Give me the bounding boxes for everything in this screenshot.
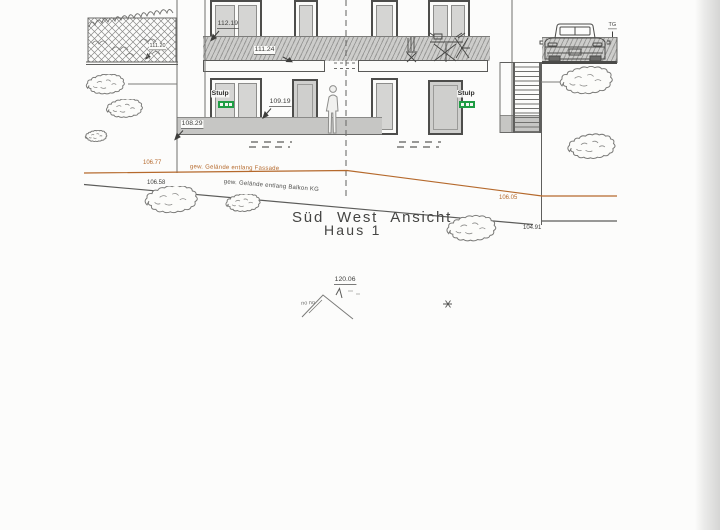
level-railing-top: 112.19: [217, 20, 239, 29]
scanned-elevation-drawing: Stulp Stulp 112.19 111.24 111.20 109.19 …: [0, 0, 720, 530]
level-pergola-top: 111.20: [149, 43, 166, 50]
drawing-subtitle: Haus 1: [324, 223, 382, 238]
center-axis-dashline: [334, 0, 358, 196]
stulp-green-sign-right: [459, 101, 475, 108]
dimension-arrows: [146, 31, 613, 140]
bush-sketch: [86, 74, 124, 94]
asterisk-mark: [443, 301, 452, 308]
terrain-level-left-balkon: 106.58: [147, 180, 165, 186]
level-slab-top: 111.24: [254, 46, 275, 55]
terrain-level-left-fassade: 106.77: [143, 160, 161, 166]
bush-sketch: [85, 130, 107, 141]
pergola-sketch: [86, 10, 178, 65]
joint-dashes: [249, 142, 441, 147]
linework-overlay: [0, 0, 720, 530]
bush-sketch: [226, 194, 260, 212]
balcony-furniture-sketch: [406, 33, 470, 62]
level-floor-upper: 109.19: [269, 98, 291, 107]
terrain-level-right-low: 104.91: [523, 225, 541, 231]
stulp-green-sign-left: [218, 101, 234, 108]
car-sketch: [540, 24, 610, 61]
bush-sketch: [568, 134, 615, 159]
person-silhouette: [326, 86, 338, 133]
stulp-label-right: Stulp: [457, 90, 475, 97]
terrain-level-right-fassade: 106.05: [499, 195, 517, 201]
bush-sketch: [560, 66, 612, 93]
facade-edges: [177, 0, 617, 225]
bush-sketch: [106, 99, 142, 118]
level-terrace: 108.29: [181, 120, 203, 129]
sketch-note: no no: [301, 300, 315, 307]
scan-edge-shadow: [695, 0, 720, 530]
level-ridge: 120.06: [334, 276, 356, 285]
garage-label: TG: [608, 22, 617, 29]
stulp-label-left: Stulp: [211, 90, 229, 97]
bush-sketch: [447, 215, 496, 241]
bush-sketch: [145, 185, 197, 212]
